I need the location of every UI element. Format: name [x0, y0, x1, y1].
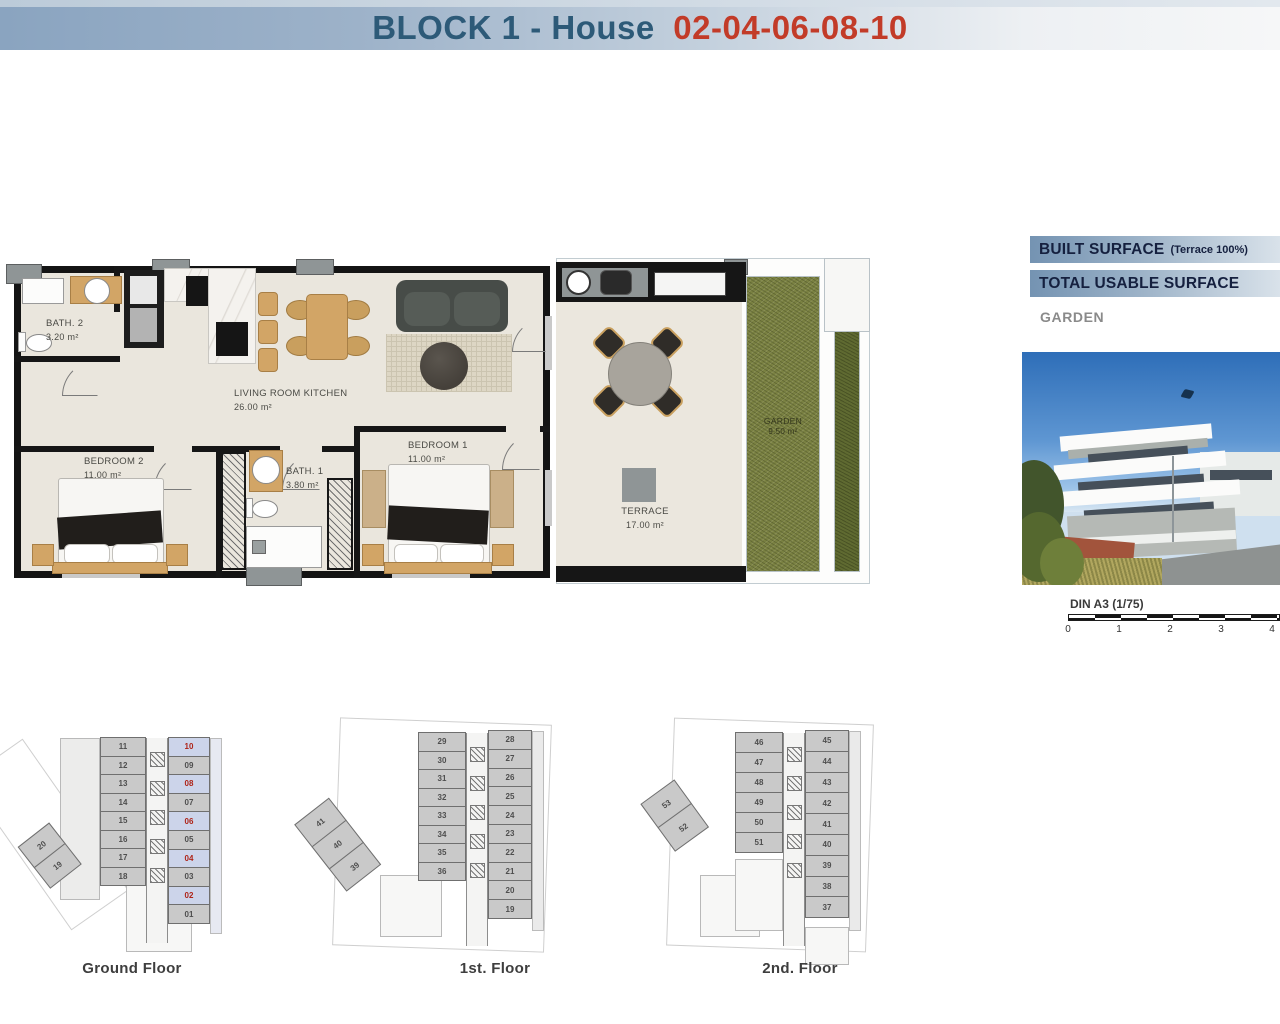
total-usable-bar: TOTAL USABLE SURFACE [1030, 270, 1280, 297]
unit-17: 17 [100, 848, 146, 868]
unit-30: 30 [418, 751, 466, 771]
unit-09: 09 [168, 756, 210, 776]
bar-stool-1 [258, 292, 278, 316]
f2-shaft-4 [787, 834, 802, 849]
f2-balcony-strip [849, 731, 861, 931]
unit-37: 37 [805, 896, 849, 918]
scale-tick-4: 4 [1266, 624, 1278, 635]
terrace-area: 17.00 m² [600, 519, 690, 531]
unit-31: 31 [418, 769, 466, 789]
scale-bar-row-bottom [1069, 618, 1279, 621]
unit-44: 44 [805, 751, 849, 773]
unit-36: 36 [418, 862, 466, 882]
unit-05: 05 [168, 830, 210, 850]
unit-14: 14 [100, 793, 146, 813]
f1-balcony-strip [532, 731, 544, 931]
unit-12: 12 [100, 756, 146, 776]
bathtub-faucet [252, 540, 266, 554]
unit-51: 51 [735, 832, 783, 853]
window-bedroom1-terrace [545, 470, 552, 526]
wall-bath2-bottom [14, 356, 120, 362]
bath1-toilet [252, 500, 278, 518]
unit-20: 20 [488, 880, 532, 900]
unit-38: 38 [805, 876, 849, 898]
wardrobe-hatch-left [221, 452, 246, 570]
column-bottom [246, 566, 302, 586]
photo-annex-window [1210, 470, 1272, 480]
gf-shaft-2 [150, 781, 165, 796]
bath2-area: 3.20 m² [46, 331, 116, 343]
mini-plan-ground-floor: 1112131415161718 10090807060504030201 20… [8, 712, 243, 962]
unit-41: 41 [805, 813, 849, 835]
f1-shaft-5 [470, 863, 485, 878]
gf-shaft-1 [150, 752, 165, 767]
unit-47: 47 [735, 752, 783, 773]
brochure-page: BLOCK 1 - House 02-04-06-08-10 [0, 0, 1280, 1024]
bedroom1-headboard [384, 562, 492, 574]
wardrobe-hatch-right [327, 478, 353, 570]
bar-stool-2 [258, 320, 278, 344]
unit-08: 08 [168, 774, 210, 794]
bath1-area: 3.80 m² [286, 479, 350, 491]
mini-plan-first-floor: 2930313233343536 28272625242322212019 41… [300, 715, 560, 960]
f2-shaft-2 [787, 776, 802, 791]
column-top-2 [296, 259, 334, 275]
dining-table [306, 294, 348, 360]
unit-49: 49 [735, 792, 783, 813]
garden-white-box [824, 258, 870, 332]
unit-11: 11 [100, 737, 146, 757]
unit-26: 26 [488, 768, 532, 788]
total-usable-label: TOTAL USABLE SURFACE [1039, 275, 1239, 293]
unit-25: 25 [488, 786, 532, 806]
scale-tick-2: 2 [1164, 624, 1176, 635]
mini-plan-second-floor: 464748495051 454443424140393837 5352 [640, 715, 890, 960]
bedroom2-nightstand-2 [166, 544, 188, 566]
unit-27: 27 [488, 749, 532, 769]
unit-01: 01 [168, 904, 210, 924]
scale-bar [1068, 614, 1280, 621]
f1-left-column: 2930313233343536 [418, 733, 466, 881]
gf-shaft-3 [150, 810, 165, 825]
garden-panel-label: GARDEN [1040, 309, 1104, 325]
photo-bush-3 [1040, 538, 1084, 585]
unit-42: 42 [805, 792, 849, 814]
f1-courtyard [380, 875, 442, 937]
gf-core [146, 738, 168, 943]
bath1-cistern [246, 498, 253, 518]
bedroom1-pillow-2 [440, 544, 484, 564]
bedroom1-nightstand-2 [492, 544, 514, 566]
unit-46: 46 [735, 732, 783, 753]
gf-shaft-5 [150, 868, 165, 883]
sofa-cushion-1 [404, 292, 450, 326]
f2-core [783, 733, 805, 946]
scale-bar-label: DIN A3 (1/75) [1070, 597, 1144, 611]
built-surface-bar: BUILT SURFACE (Terrace 100%) [1030, 236, 1280, 263]
unit-43: 43 [805, 772, 849, 794]
bath2-cistern [18, 332, 26, 352]
bedroom1-label: BEDROOM 1 11.00 m² [408, 440, 488, 465]
bedroom2-name: BEDROOM 2 [84, 456, 164, 469]
unit-07: 07 [168, 793, 210, 813]
scale-tick-0: 0 [1062, 624, 1074, 635]
wall-bedroom1-top-a [360, 426, 506, 432]
bath2-label: BATH. 2 3.20 m² [46, 318, 116, 343]
terrace-grill [600, 270, 632, 295]
terrace-white-box [654, 272, 726, 296]
f1-shaft-1 [470, 747, 485, 762]
garden-label: GARDEN 9.50 m² [748, 416, 818, 438]
unit-28: 28 [488, 730, 532, 750]
unit-15: 15 [100, 811, 146, 831]
gf-shaft-4 [150, 839, 165, 854]
garden-area: 9.50 m² [748, 427, 818, 438]
f2-shaft-5 [787, 863, 802, 878]
built-surface-note: (Terrace 100%) [1170, 244, 1247, 256]
bedroom1-pillow-1 [394, 544, 438, 564]
terrace-label: TERRACE 17.00 m² [600, 506, 690, 531]
washing-machine [566, 270, 591, 295]
unit-40: 40 [805, 834, 849, 856]
bedroom1-blanket [387, 505, 489, 544]
first-floor-label: 1st. Floor [395, 960, 595, 977]
window-living-terrace [545, 316, 552, 370]
unit-10: 10 [168, 737, 210, 757]
unit-18: 18 [100, 867, 146, 887]
unit-45: 45 [805, 730, 849, 752]
bedroom1-sidemat-right [490, 470, 514, 528]
bar-stool-3 [258, 348, 278, 372]
terrace-table [608, 342, 672, 406]
f1-right-column: 28272625242322212019 [488, 731, 532, 919]
living-area: 26.00 m² [234, 401, 364, 413]
wall-corridor-top-b [322, 446, 358, 452]
f2-left-column: 464748495051 [735, 733, 783, 853]
living-label: LIVING ROOM KITCHEN 26.00 m² [234, 388, 364, 413]
unit-34: 34 [418, 825, 466, 845]
f2-shaft-3 [787, 805, 802, 820]
photo-lamp-pole [1172, 456, 1174, 542]
bedroom2-pillow-2 [112, 544, 158, 564]
unit-21: 21 [488, 862, 532, 882]
bedroom1-nightstand-1 [362, 544, 384, 566]
unit-23: 23 [488, 824, 532, 844]
wall-bedroom1-top-b [540, 426, 550, 432]
garden-name: GARDEN [748, 416, 818, 427]
bedroom2-pillow-1 [64, 544, 110, 564]
f2-right-column: 454443424140393837 [805, 731, 849, 918]
wall-bedroom2-top-a [14, 446, 154, 452]
gf-balcony-strip [210, 738, 222, 934]
f1-shaft-4 [470, 834, 485, 849]
bedroom1-name: BEDROOM 1 [408, 440, 488, 453]
unit-03: 03 [168, 867, 210, 887]
f2-shaft-1 [787, 747, 802, 762]
unit-24: 24 [488, 805, 532, 825]
gf-left-column: 1112131415161718 [100, 738, 146, 886]
kitchen-fridge [130, 276, 157, 304]
pouf [420, 342, 468, 390]
bath1-name: BATH. 1 [286, 466, 350, 479]
unit-06: 06 [168, 811, 210, 831]
island-black-top [216, 322, 248, 356]
unit-33: 33 [418, 806, 466, 826]
f2-left-lower-block [735, 859, 783, 931]
unit-48: 48 [735, 772, 783, 793]
unit-13: 13 [100, 774, 146, 794]
unit-29: 29 [418, 732, 466, 752]
built-surface-label: BUILT SURFACE [1039, 241, 1164, 259]
unit-32: 32 [418, 788, 466, 808]
unit-35: 35 [418, 843, 466, 863]
unit-22: 22 [488, 843, 532, 863]
unit-19: 19 [488, 899, 532, 919]
scale-tick-1: 1 [1113, 624, 1125, 635]
bath2-vanity [22, 278, 64, 304]
terrace-bottom-band [556, 566, 746, 582]
bedroom2-nightstand-1 [32, 544, 54, 566]
kitchen-oven [130, 308, 157, 342]
second-floor-label: 2nd. Floor [700, 960, 900, 977]
ground-floor-label: Ground Floor [32, 960, 232, 977]
bedroom2-headboard [52, 562, 168, 574]
wall-corridor-right [354, 426, 360, 578]
unit-16: 16 [100, 830, 146, 850]
unit-50: 50 [735, 812, 783, 833]
scale-tick-3: 3 [1215, 624, 1227, 635]
sofa-cushion-2 [454, 292, 500, 326]
bath2-sink [84, 278, 110, 304]
terrace-ac-unit [622, 468, 656, 502]
f1-core [466, 733, 488, 946]
bath1-sink [252, 456, 280, 484]
f1-shaft-2 [470, 776, 485, 791]
bath2-name: BATH. 2 [46, 318, 116, 331]
bath1-label: BATH. 1 3.80 m² [286, 466, 350, 491]
gf-right-column: 10090807060504030201 [168, 738, 210, 924]
unit-04: 04 [168, 849, 210, 869]
f1-shaft-3 [470, 805, 485, 820]
bedroom1-sidemat-left [362, 470, 386, 528]
unit-02: 02 [168, 886, 210, 906]
unit-39: 39 [805, 855, 849, 877]
living-name: LIVING ROOM KITCHEN [234, 388, 364, 401]
garden-strip-outer [834, 330, 860, 572]
terrace-name: TERRACE [600, 506, 690, 519]
building-photo [1022, 352, 1280, 585]
